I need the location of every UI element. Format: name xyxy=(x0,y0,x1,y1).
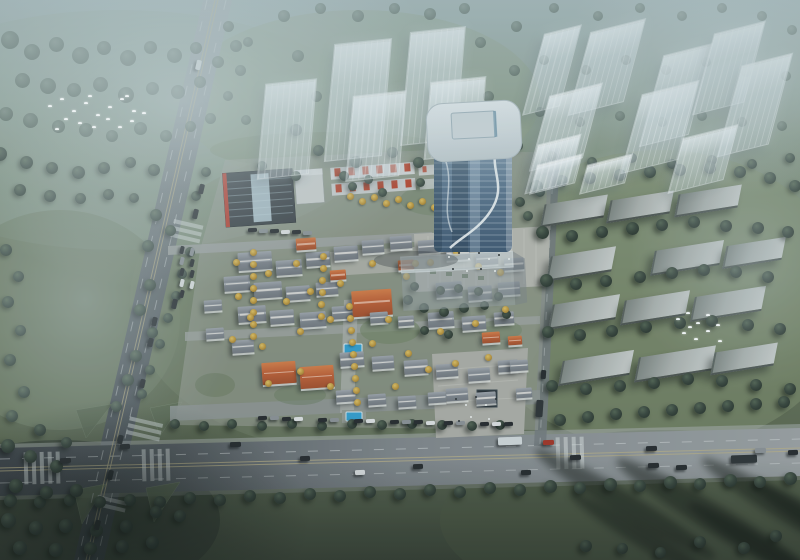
office-tower xyxy=(426,100,523,252)
tower-shadow xyxy=(374,251,458,269)
tower-roof xyxy=(426,100,523,163)
aerial-render xyxy=(0,0,800,560)
tower-scene xyxy=(0,0,800,560)
roof-skylight xyxy=(451,111,496,139)
